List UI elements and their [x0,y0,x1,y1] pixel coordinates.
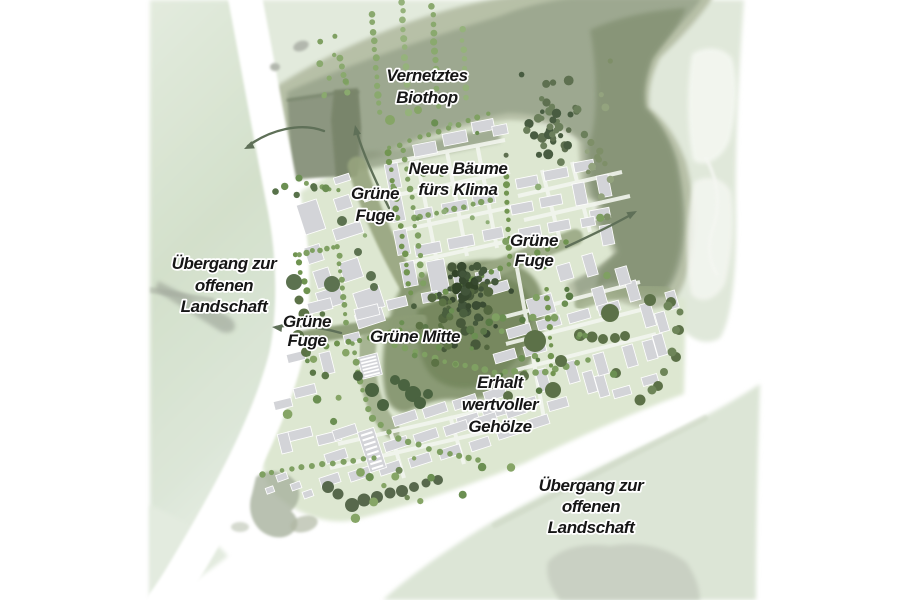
svg-text:offenen: offenen [195,276,253,295]
svg-text:Übergang zur: Übergang zur [172,254,279,273]
svg-text:Landschaft: Landschaft [181,297,269,316]
svg-text:Fuge: Fuge [514,251,553,270]
svg-text:offenen: offenen [562,497,620,516]
svg-text:Neue Bäume: Neue Bäume [409,159,508,178]
svg-text:Biothop: Biothop [396,88,457,107]
svg-text:Grüne: Grüne [510,231,558,250]
svg-text:fürs Klima: fürs Klima [418,180,497,199]
svg-text:Grüne: Grüne [283,312,331,331]
svg-text:Landschaft: Landschaft [548,518,636,537]
svg-text:Fuge: Fuge [287,331,326,350]
svg-text:Gehölze: Gehölze [468,417,531,436]
svg-text:Übergang zur: Übergang zur [539,476,646,495]
svg-text:Grüne: Grüne [351,184,399,203]
svg-text:wertvoller: wertvoller [462,395,540,414]
svg-text:Erhalt: Erhalt [477,373,525,392]
svg-text:Grüne Mitte: Grüne Mitte [370,327,460,346]
svg-text:Vernetztes: Vernetztes [386,66,467,85]
svg-text:Fuge: Fuge [355,206,394,225]
